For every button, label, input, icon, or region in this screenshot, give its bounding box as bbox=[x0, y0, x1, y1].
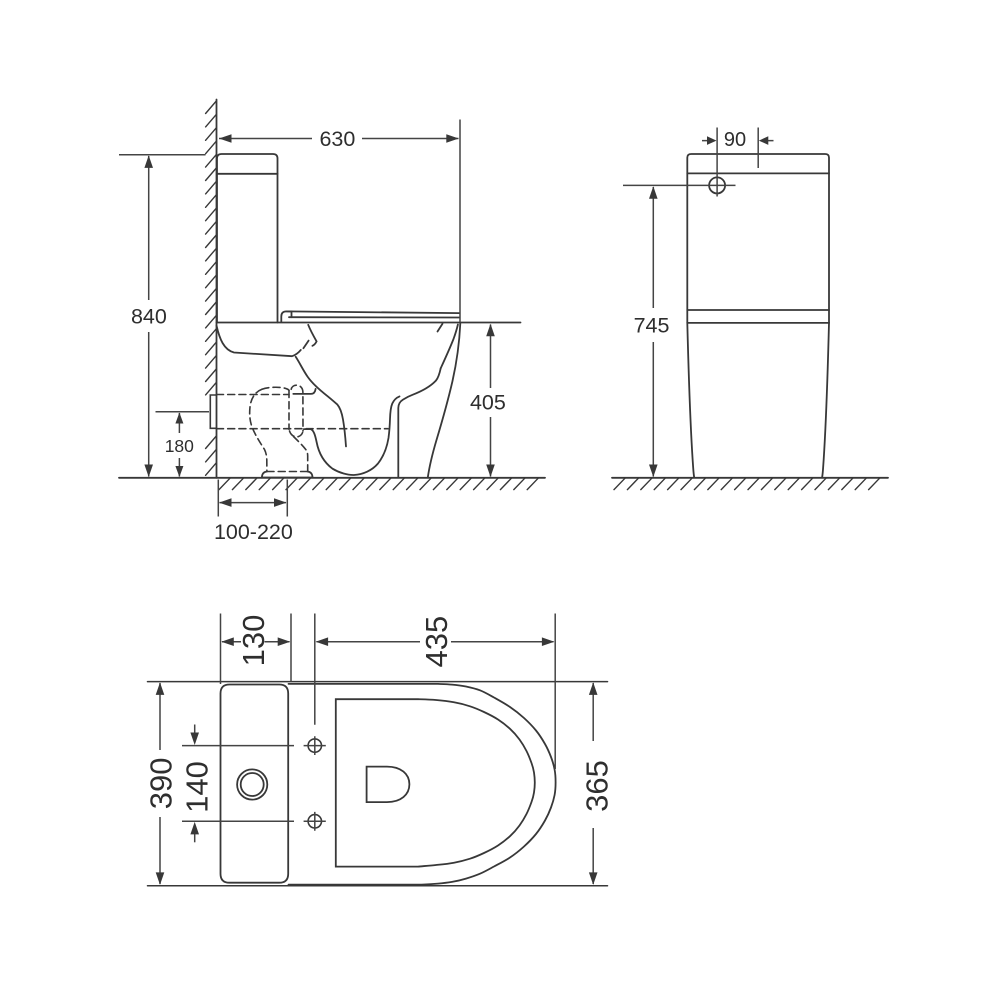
svg-text:405: 405 bbox=[470, 391, 506, 415]
svg-text:630: 630 bbox=[319, 127, 355, 151]
svg-text:180: 180 bbox=[165, 436, 194, 456]
svg-text:100-220: 100-220 bbox=[214, 520, 293, 544]
svg-text:840: 840 bbox=[131, 305, 167, 329]
svg-text:90: 90 bbox=[724, 129, 746, 151]
svg-text:140: 140 bbox=[180, 761, 215, 813]
svg-text:130: 130 bbox=[236, 615, 271, 667]
svg-text:365: 365 bbox=[580, 760, 615, 812]
svg-text:435: 435 bbox=[419, 616, 454, 668]
svg-text:390: 390 bbox=[143, 758, 178, 810]
svg-text:745: 745 bbox=[634, 313, 670, 337]
